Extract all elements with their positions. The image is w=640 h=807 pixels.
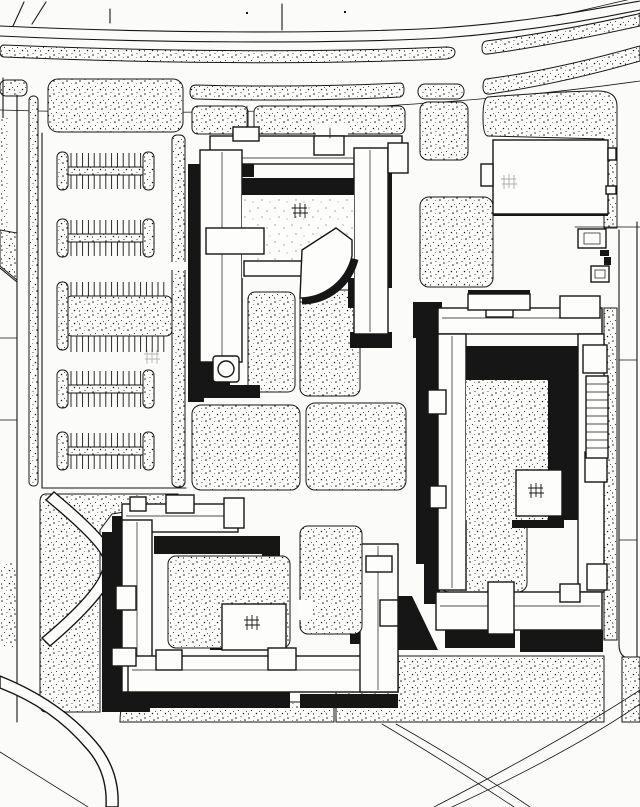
east-courtyard-building	[370, 290, 617, 652]
strip-break	[170, 262, 187, 270]
exterior-stair-run	[586, 376, 608, 458]
hall-block	[493, 140, 608, 214]
west-wing	[200, 150, 242, 362]
panel	[420, 197, 493, 287]
verge-segment	[0, 80, 27, 96]
link-bridge	[206, 228, 264, 254]
northeast-hall	[481, 140, 616, 282]
verge-sweep-northeast	[483, 46, 640, 94]
edge-planting	[0, 563, 16, 647]
site-plan-sheet: Black-and-white architectural campus sit…	[0, 0, 640, 807]
court-pavilion	[222, 604, 286, 650]
service-enclosure	[578, 229, 606, 248]
verge-segment	[418, 84, 464, 99]
verge-block-west	[48, 79, 183, 132]
service-enclosure	[591, 266, 609, 282]
north-link-bridge	[468, 294, 530, 310]
median-strip-west	[0, 45, 455, 63]
east-tab	[608, 148, 616, 160]
edge-planting	[0, 118, 8, 230]
bed-notch	[316, 124, 348, 135]
parking-west-strip	[29, 96, 38, 486]
panel-notch	[298, 600, 312, 620]
parking-row-2	[57, 219, 154, 257]
service-yard	[578, 229, 611, 282]
edge-planting	[0, 230, 17, 280]
median-strip-east	[482, 13, 640, 54]
site-plan-drawing: Black-and-white architectural campus sit…	[0, 0, 640, 807]
east-wing	[354, 148, 388, 334]
parking-row-1	[57, 152, 154, 190]
parking-row-4	[57, 370, 154, 408]
west-entry-tab	[481, 164, 493, 186]
parking-field	[29, 96, 187, 488]
west-boundary	[0, 78, 17, 722]
north-courtyard-building	[188, 127, 408, 402]
survey-tick-marks	[13, 2, 346, 30]
panel	[306, 403, 406, 490]
planting-square	[420, 102, 468, 160]
panel	[248, 292, 295, 392]
parking-east-strip	[172, 135, 185, 487]
verge-segment	[190, 83, 404, 100]
panel	[192, 405, 300, 490]
east-road	[619, 222, 640, 700]
stair-drum	[218, 361, 234, 377]
parking-row-3-wide-median	[57, 282, 172, 352]
parking-row-5	[57, 432, 154, 470]
east-tab	[606, 186, 616, 194]
